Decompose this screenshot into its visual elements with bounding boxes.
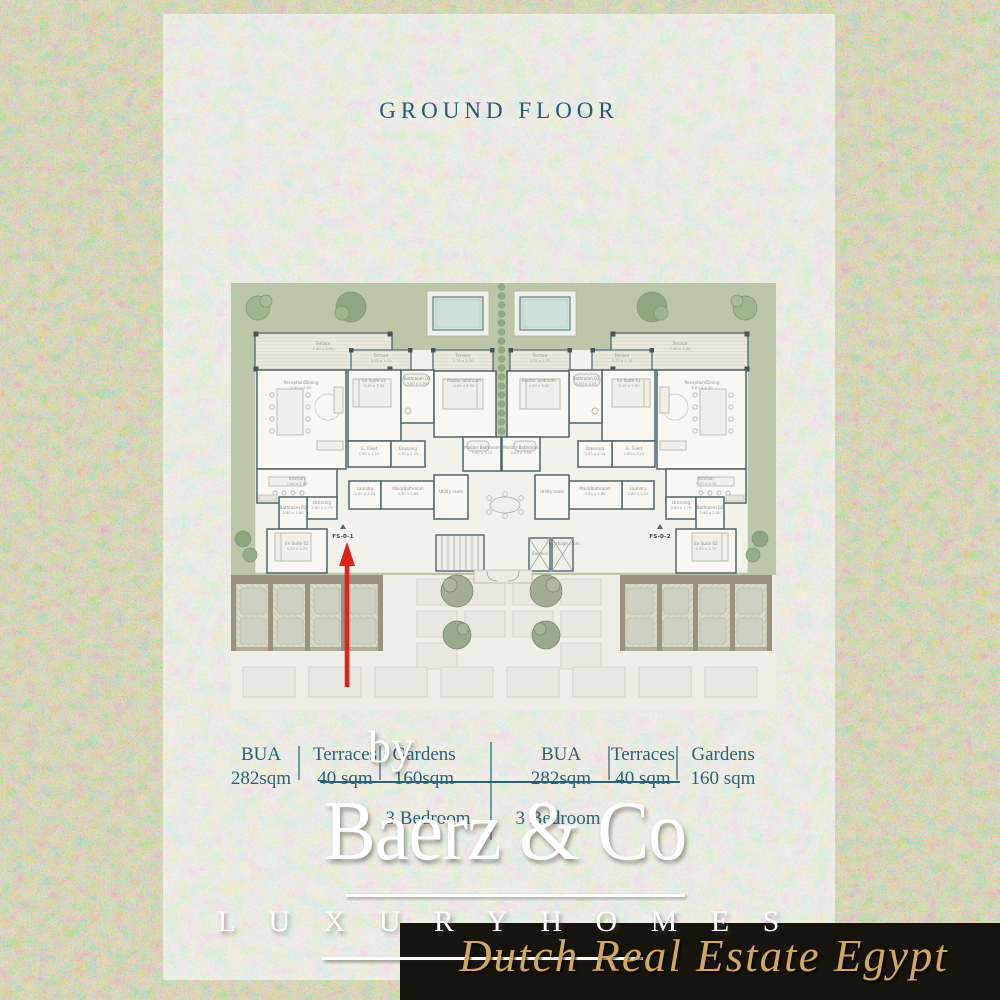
floor-plan: Terrace7.40 x 3.00Terrace7.40 x 3.00Terr…	[231, 283, 776, 710]
room-label: Utility room	[540, 489, 564, 494]
hedge-row	[498, 284, 505, 435]
room-label: Utility room	[439, 489, 463, 494]
spec-divider	[298, 746, 300, 780]
spec-col-bua-1: BUA 282sqm	[231, 744, 291, 790]
watermark-line-top	[345, 894, 685, 897]
pergola	[231, 575, 383, 651]
watermark-brand: Baerz & Co	[324, 782, 687, 879]
pool	[433, 297, 483, 330]
page: GROUND FLOOR	[0, 0, 1000, 1000]
spec-col-gardens-2: Gardens 160 sqm	[691, 744, 756, 790]
room-label: Balance	[532, 551, 549, 556]
banner-text: Dutch Real Estate Egypt	[459, 930, 949, 982]
spec-divider	[676, 746, 678, 780]
spec-divider	[608, 746, 610, 780]
unit-id-label: FS-0-2	[649, 534, 670, 540]
watermark-by: by	[368, 720, 414, 773]
unit-id-label: FS-0-1	[332, 534, 353, 540]
page-title: GROUND FLOOR	[163, 98, 835, 124]
room-label: Garbage room	[550, 541, 579, 546]
